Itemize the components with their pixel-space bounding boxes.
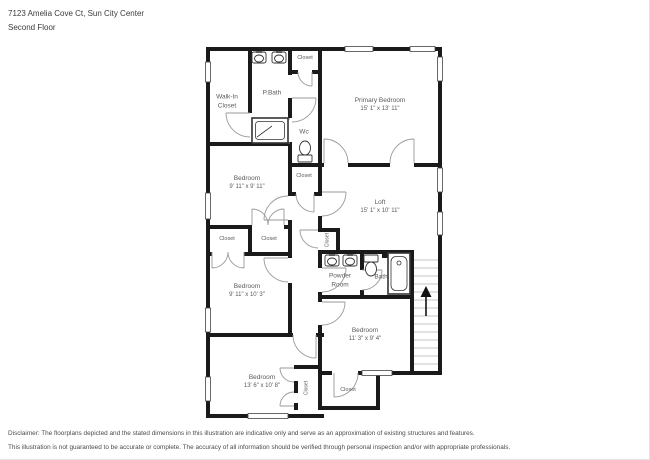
up-arrow-icon <box>421 286 432 316</box>
sink-icon <box>252 52 266 63</box>
bathtub-icon <box>252 118 288 143</box>
windows <box>206 47 443 419</box>
disclaimer-line-2: This illustration is not guaranteed to b… <box>8 443 510 453</box>
floorplan-page: 7123 Amelia Cove Ct, Sun City Center Sec… <box>0 0 650 460</box>
bathtub-icon <box>388 253 410 294</box>
floorplan-drawing <box>0 0 650 460</box>
toilet-icon <box>298 141 312 162</box>
staircase <box>414 260 438 364</box>
walls <box>206 47 442 418</box>
toilet-icon <box>364 255 378 276</box>
disclaimer-line-1: Disclaimer: The floorplans depicted and … <box>8 429 475 439</box>
doors <box>212 72 414 406</box>
sink-icon <box>325 255 339 266</box>
sink-icon <box>272 52 286 63</box>
sink-icon <box>343 255 357 266</box>
